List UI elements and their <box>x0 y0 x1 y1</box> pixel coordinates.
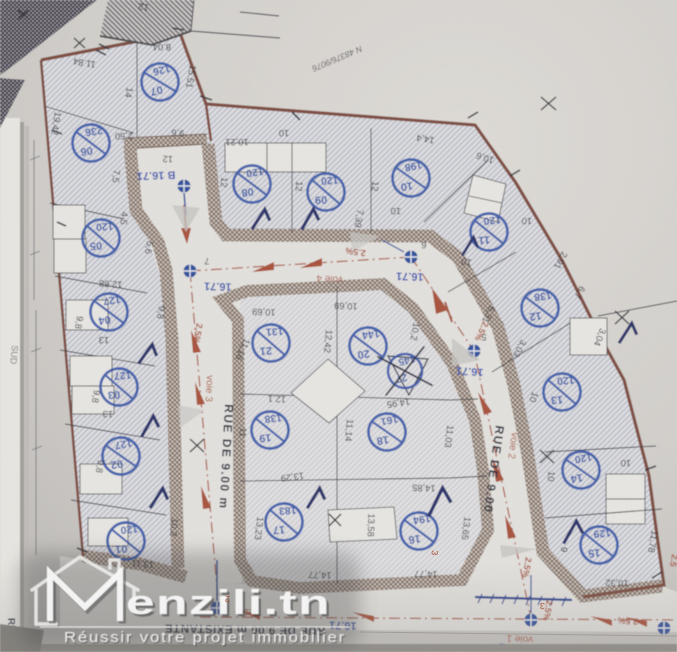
svg-text:3: 3 <box>429 550 439 556</box>
svg-text:2: 2 <box>225 594 230 604</box>
svg-text:3: 3 <box>540 601 545 611</box>
